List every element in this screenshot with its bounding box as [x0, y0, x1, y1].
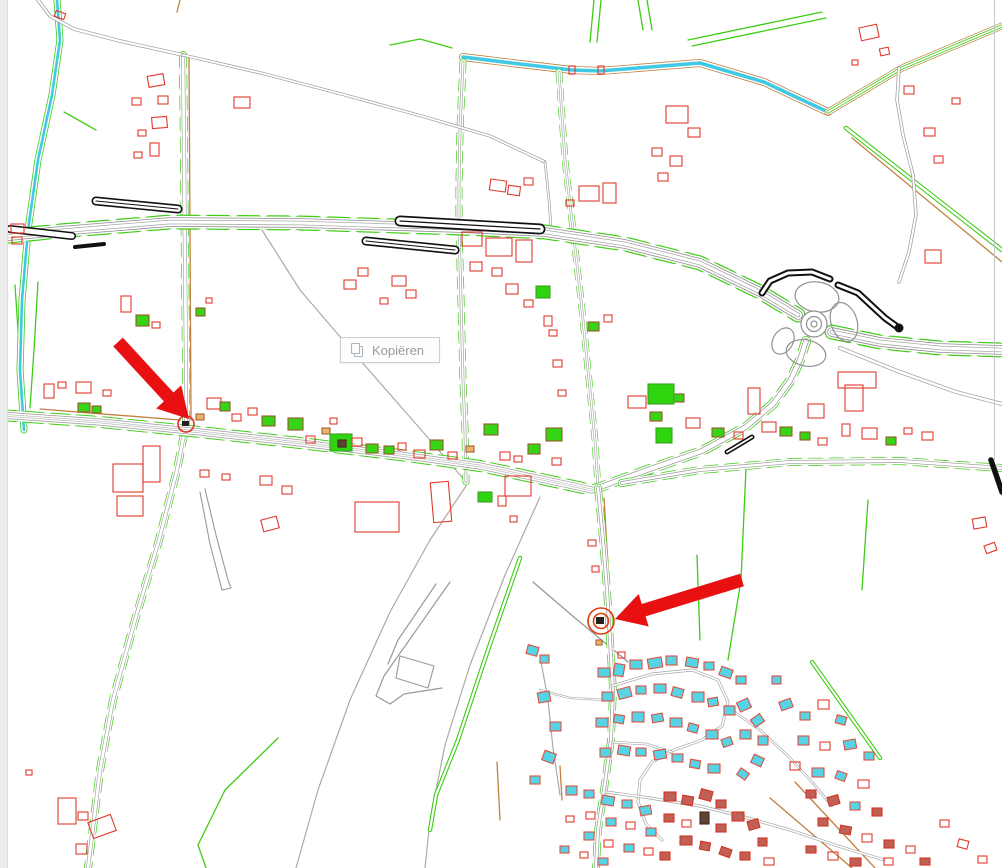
- barrier-end-dot: [895, 324, 904, 333]
- building: [732, 812, 744, 821]
- building: [366, 444, 378, 453]
- building: [632, 712, 644, 722]
- building: [660, 852, 670, 860]
- building: [584, 790, 594, 798]
- building: [288, 418, 303, 430]
- building: [724, 706, 735, 715]
- building: [850, 858, 861, 866]
- building: [430, 440, 443, 450]
- building: [689, 759, 700, 769]
- building: [740, 730, 751, 739]
- building: [92, 406, 101, 413]
- building: [639, 805, 651, 816]
- copy-menu-label: Kopiëren: [372, 343, 424, 358]
- building: [646, 828, 656, 836]
- building: [850, 802, 860, 810]
- building: [648, 384, 674, 404]
- building: [598, 858, 608, 865]
- building: [672, 754, 683, 762]
- building: [664, 792, 676, 801]
- building: [338, 440, 346, 447]
- building: [806, 846, 816, 853]
- building: [600, 748, 611, 757]
- building: [560, 846, 569, 853]
- building: [806, 790, 816, 798]
- building: [636, 748, 646, 756]
- roundabout-ring: [801, 311, 827, 337]
- building: [540, 655, 549, 663]
- building: [588, 322, 599, 331]
- building: [546, 428, 562, 441]
- building: [384, 446, 394, 454]
- building: [712, 428, 724, 437]
- building: [647, 657, 663, 669]
- building: [818, 818, 828, 826]
- building: [622, 800, 632, 808]
- left-margin: [0, 0, 7, 868]
- building: [654, 684, 666, 693]
- building: [798, 736, 809, 745]
- building: [322, 428, 330, 434]
- building: [566, 786, 577, 795]
- building: [651, 713, 663, 723]
- building: [666, 656, 677, 665]
- building: [685, 657, 698, 668]
- building: [716, 800, 726, 808]
- copy-menu-item[interactable]: Kopiëren: [340, 337, 440, 363]
- building: [478, 492, 492, 502]
- building: [692, 692, 704, 702]
- building: [800, 712, 810, 720]
- building: [636, 686, 646, 694]
- building: [584, 832, 594, 840]
- building: [680, 836, 692, 845]
- building: [707, 697, 718, 707]
- building: [596, 640, 602, 645]
- building: [681, 795, 693, 806]
- building: [772, 676, 781, 684]
- building: [262, 416, 275, 426]
- building: [708, 764, 720, 773]
- building: [812, 768, 824, 777]
- building: [800, 432, 810, 440]
- building: [843, 739, 856, 750]
- building: [630, 660, 642, 669]
- building: [740, 852, 750, 860]
- building: [530, 776, 540, 784]
- building: [700, 812, 709, 824]
- building: [484, 424, 498, 435]
- building: [716, 824, 726, 832]
- building: [674, 394, 684, 402]
- building: [670, 718, 682, 727]
- copy-icon: [351, 343, 364, 357]
- building: [78, 403, 90, 412]
- building: [196, 414, 204, 420]
- building: [864, 752, 874, 760]
- building: [220, 402, 230, 411]
- building: [528, 444, 540, 454]
- building: [606, 818, 616, 826]
- building: [920, 858, 930, 865]
- building: [872, 808, 882, 816]
- building: [601, 795, 614, 806]
- building: [624, 844, 634, 852]
- building: [550, 722, 561, 731]
- building: [664, 814, 674, 822]
- building: [136, 315, 149, 326]
- building: [598, 668, 610, 677]
- building: [602, 692, 613, 701]
- building: [886, 437, 896, 445]
- map-canvas[interactable]: [0, 0, 1002, 868]
- building: [780, 427, 792, 436]
- building: [613, 714, 624, 724]
- building: [884, 840, 894, 848]
- building: [536, 286, 550, 298]
- building: [650, 412, 662, 421]
- building: [699, 841, 710, 851]
- building: [758, 736, 768, 745]
- building: [596, 718, 608, 727]
- building: [839, 825, 851, 835]
- building: [706, 730, 718, 739]
- map-viewer: Kopiëren: [0, 0, 1002, 868]
- building: [758, 838, 767, 846]
- building: [537, 691, 551, 703]
- building: [736, 676, 746, 684]
- building: [617, 745, 630, 756]
- building: [656, 428, 672, 443]
- building: [653, 749, 666, 760]
- building: [196, 308, 205, 316]
- building: [704, 662, 714, 670]
- building: [466, 446, 474, 452]
- building: [613, 663, 625, 677]
